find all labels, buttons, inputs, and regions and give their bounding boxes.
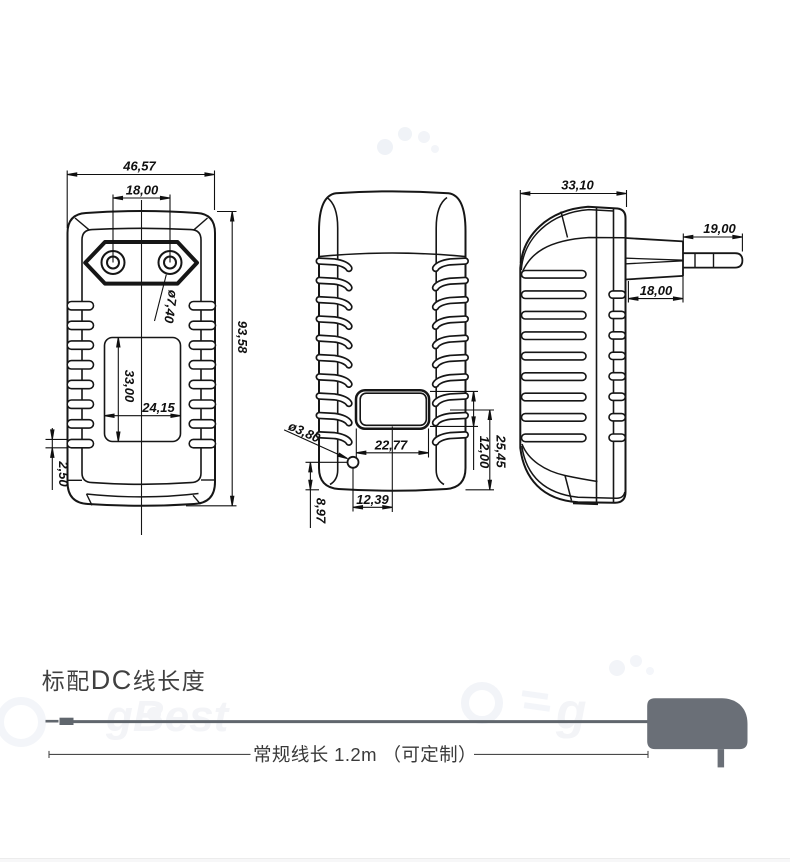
svg-text:gBest: gBest: [105, 692, 231, 741]
svg-text:18,00: 18,00: [640, 283, 673, 298]
svg-text:标配DC线长度: 标配DC线长度: [42, 665, 207, 695]
svg-text:93,58: 93,58: [235, 321, 250, 354]
svg-text:g: g: [555, 683, 587, 739]
svg-text:24,15: 24,15: [141, 400, 175, 415]
svg-text:常规线长 1.2m （可定制）: 常规线长 1.2m （可定制）: [253, 744, 477, 765]
svg-text:25,45: 25,45: [494, 434, 509, 468]
svg-text:19,00: 19,00: [703, 221, 736, 236]
svg-text:12,39: 12,39: [356, 492, 389, 507]
svg-text:8,97: 8,97: [314, 498, 329, 524]
svg-text:33,00: 33,00: [122, 370, 137, 403]
svg-text:18,00: 18,00: [126, 183, 159, 198]
svg-text:33,10: 33,10: [561, 178, 594, 193]
svg-text:2,50: 2,50: [56, 460, 71, 487]
svg-text:46,57: 46,57: [122, 159, 156, 174]
svg-text:22,77: 22,77: [374, 437, 408, 452]
